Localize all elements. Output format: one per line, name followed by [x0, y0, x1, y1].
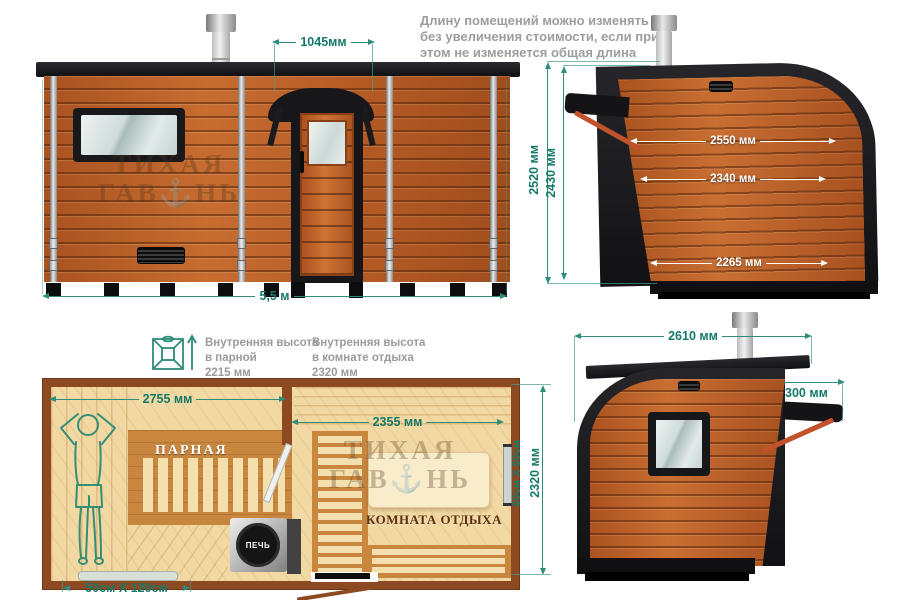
dim-rear-width-value: 2610 мм — [664, 329, 722, 343]
dim-step-size: 50см X 120см — [63, 581, 190, 595]
dim-awning-depth-value: 300 мм — [785, 386, 828, 400]
dim-width-mid-value: 2340 мм — [706, 172, 760, 186]
extension-line — [547, 61, 660, 62]
entry-step — [78, 571, 178, 581]
dim-width-base: 2265 мм — [650, 256, 828, 270]
entry-threshold — [315, 573, 370, 579]
parnaya-bench — [143, 458, 285, 512]
person-figure — [52, 408, 122, 566]
dim-width-base-value: 2265 мм — [712, 256, 766, 270]
rear-window-glass — [656, 420, 702, 468]
dim-parnaya-width: 2755 мм — [49, 392, 286, 406]
strap-buckle — [49, 238, 58, 249]
watermark-line: ГАВ⚓НЬ — [316, 465, 484, 494]
chimney-ring — [212, 58, 230, 60]
dim-door-width-value: 1045мм — [296, 35, 350, 49]
extension-line — [190, 580, 191, 592]
strap-buckle — [489, 260, 498, 271]
height-note-rest: Внутренняя высота в комнате отдыха 2320 … — [312, 336, 442, 381]
sauna-blueprint: Длину помещений можно изменять без увели… — [0, 0, 900, 600]
brand-watermark: ТИХАЯ ГАВ⚓НЬ — [316, 436, 484, 494]
stove-wall-chunk — [287, 519, 301, 574]
strap-buckle — [385, 260, 394, 271]
metal-strap — [490, 76, 497, 282]
watermark-line: ГАВ⚓НЬ — [86, 179, 252, 208]
side-view: 2550 мм 2340 мм 2265 мм 2520 мм 2430 мм — [530, 0, 900, 320]
dim-plan-depth-value: 2320 мм — [528, 448, 542, 498]
strap-buckle — [385, 238, 394, 249]
metal-strap — [386, 76, 393, 282]
extension-line — [274, 44, 275, 92]
dim-rest-width-value: 2355 мм — [369, 415, 427, 429]
door-glass — [307, 120, 347, 166]
metal-strap — [50, 76, 57, 282]
chimney-cap — [651, 15, 677, 31]
brand-watermark: ТИХАЯ ГАВ⚓НЬ — [86, 150, 252, 208]
dim-rear-width: 2610 мм — [574, 329, 812, 343]
interior-height-icon — [150, 332, 200, 374]
extension-line — [372, 44, 373, 92]
height-note-line: Внутренняя высота — [205, 336, 320, 351]
vent-grille — [678, 381, 700, 391]
front-view: ТИХАЯ ГАВ⚓НЬ 1045мм — [0, 0, 540, 320]
base-skid-lip — [658, 292, 870, 299]
stove-top: ПЕЧЬ — [236, 523, 280, 567]
vent-grille — [137, 247, 185, 264]
rest-label: КОМНАТА ОТДЫХА — [366, 512, 502, 528]
plan-window-size-value: 60см X 60см — [511, 440, 523, 506]
extension-line — [547, 283, 657, 284]
watermark-line: ТИХАЯ — [86, 150, 252, 179]
extension-line — [506, 80, 507, 294]
dim-width-top: 2550 мм — [630, 134, 836, 148]
dim-rest-width: 2355 мм — [291, 415, 504, 429]
dim-height-outer-value: 2520 мм — [527, 145, 541, 195]
dim-width-mid: 2340 мм — [640, 172, 826, 186]
roof-band — [36, 62, 520, 77]
height-note-parnaya: Внутренняя высота в парной 2215 мм — [205, 336, 320, 381]
dim-total-length: 5,5 м — [42, 289, 507, 303]
dim-height-inner — [559, 66, 568, 280]
extension-line — [563, 65, 650, 66]
vent-grille — [709, 81, 733, 92]
rest-bench-bottom — [372, 549, 505, 574]
extension-line — [842, 383, 843, 421]
strap-buckle — [489, 238, 498, 249]
chimney-cap — [206, 14, 236, 32]
extension-line — [574, 336, 575, 422]
strap-buckle — [237, 238, 246, 249]
dim-width-top-value: 2550 мм — [706, 134, 760, 148]
chimney-cap — [732, 312, 758, 328]
watermark-line: ТИХАЯ — [316, 436, 484, 465]
height-note-line: Внутренняя высота — [312, 336, 442, 351]
chimney — [656, 30, 672, 70]
awning-beam — [783, 401, 844, 422]
strap-buckle — [49, 260, 58, 271]
rear-view: 2610 мм 300 мм — [555, 305, 900, 600]
height-note-line: в парной — [205, 351, 320, 366]
base-skid-lip — [585, 572, 749, 581]
height-note-line: в комнате отдыха — [312, 351, 442, 366]
door-handle — [300, 151, 304, 173]
dim-door-width: 1045мм — [272, 35, 375, 49]
dim-height-inner-value: 2430 мм — [544, 148, 558, 198]
dim-parnaya-width-value: 2755 мм — [139, 392, 197, 406]
dim-total-length-value: 5,5 м — [255, 289, 293, 303]
extension-line — [42, 80, 43, 294]
parnaya-label: ПАРНАЯ — [155, 443, 228, 459]
stove-label: ПЕЧЬ — [246, 541, 270, 550]
strap-buckle — [237, 260, 246, 271]
dim-step-size-value: 50см X 120см — [70, 581, 183, 595]
